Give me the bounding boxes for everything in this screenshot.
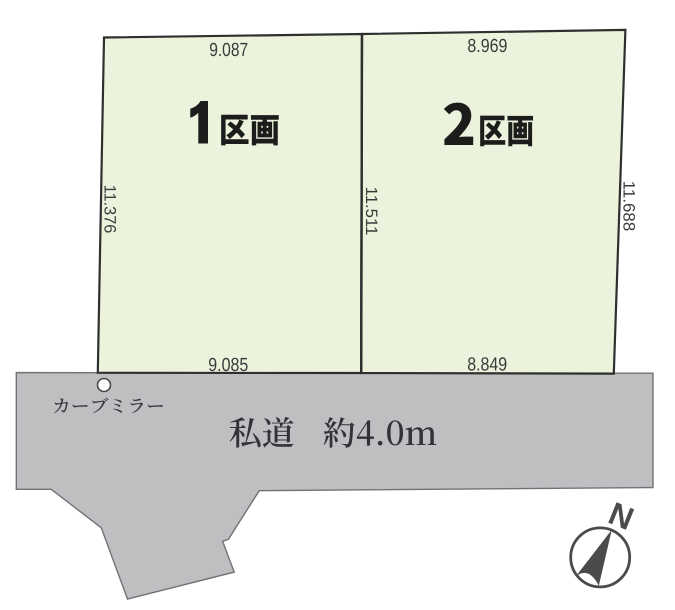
svg-text:9.087: 9.087 xyxy=(209,40,248,61)
svg-text:11.511: 11.511 xyxy=(362,187,380,236)
svg-text:11.688: 11.688 xyxy=(620,181,638,232)
svg-text:11.376: 11.376 xyxy=(101,185,119,234)
svg-text:8.849: 8.849 xyxy=(467,355,507,376)
svg-text:9.085: 9.085 xyxy=(208,355,248,376)
svg-text:8.969: 8.969 xyxy=(467,36,507,57)
